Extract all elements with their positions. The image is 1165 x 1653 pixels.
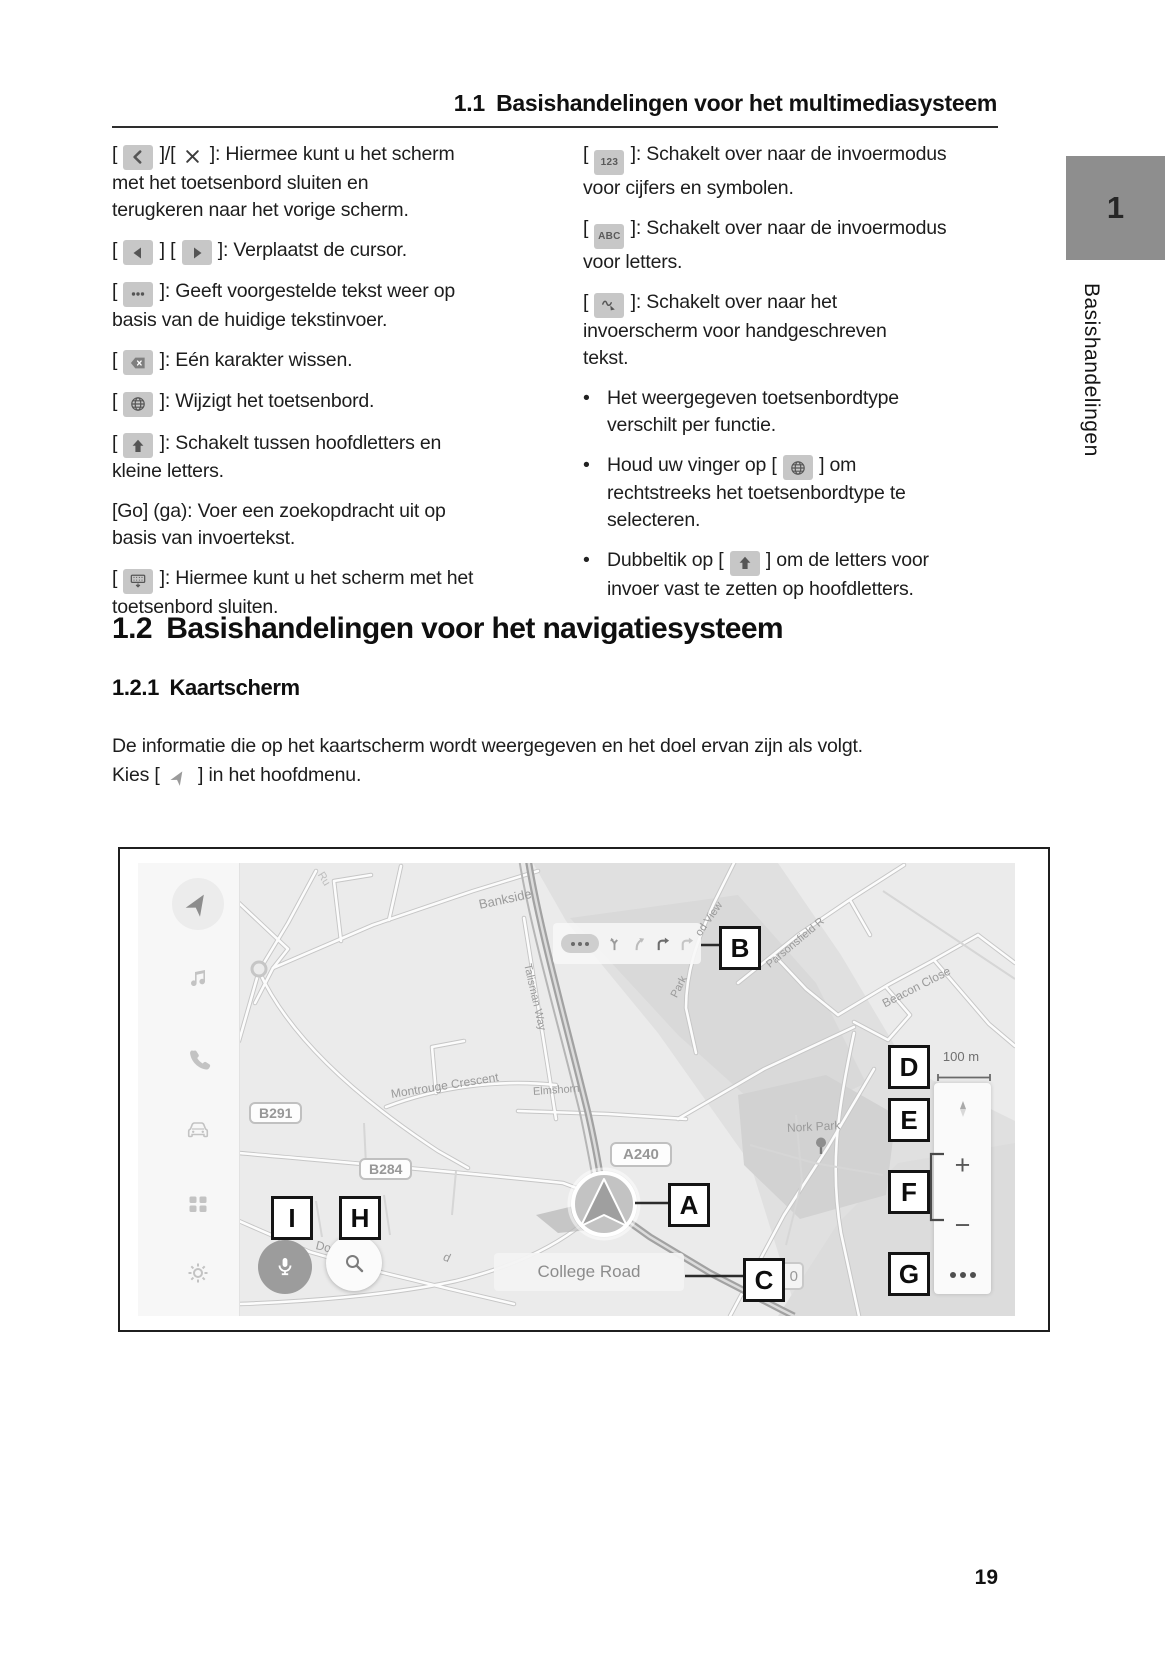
zoom-in-button[interactable]: + xyxy=(934,1152,991,1179)
backspace-icon xyxy=(123,350,153,375)
map-figure: RuBanksideod ViewParkParsonsfield RBeaco… xyxy=(118,847,1050,1332)
header-divider xyxy=(112,126,998,128)
lane-turn-right-dim-icon xyxy=(678,935,695,952)
multimedia-bullet-list: •Het weergegeven toetsenbordtypeverschil… xyxy=(583,385,1003,603)
callout-C: C xyxy=(743,1258,785,1302)
back-icon xyxy=(123,145,153,170)
cursor-right-icon xyxy=(182,240,212,265)
globe-icon xyxy=(123,392,153,417)
chapter-number: 1 xyxy=(1107,190,1124,226)
route-shield-B284: B284 xyxy=(359,1158,412,1180)
callout-H: H xyxy=(339,1196,381,1240)
multimedia-left-column: [ ]/[ ]: Hiermee kunt u het schermmet he… xyxy=(112,141,570,634)
suggest-icon xyxy=(123,282,153,307)
cursor-left-icon xyxy=(123,240,153,265)
voice-button[interactable] xyxy=(258,1240,312,1294)
mic-icon xyxy=(273,1255,297,1279)
doc-item: [ ]: Schakelt tussen hoofdletters enklei… xyxy=(112,430,570,486)
main-menu-sidebar xyxy=(138,863,240,1316)
globe-icon xyxy=(783,455,813,480)
lane-slight-right-icon xyxy=(630,935,647,952)
bullet-marker: • xyxy=(583,385,607,439)
nav-screen: RuBanksideod ViewParkParsonsfield RBeaco… xyxy=(138,863,1015,1316)
lane-turn-right-icon xyxy=(654,935,671,952)
page-number: 19 xyxy=(950,1566,998,1590)
main-menu-car-icon[interactable] xyxy=(172,1105,224,1157)
doc-item: [Go] (ga): Voer een zoekopdracht uit opb… xyxy=(112,498,570,552)
more-options-button[interactable] xyxy=(934,1272,991,1278)
callout-G: G xyxy=(888,1252,930,1296)
main-menu-phone-icon[interactable] xyxy=(172,1033,224,1085)
callout-D: D xyxy=(888,1045,930,1089)
manual-page: 1.1 Basishandelingen voor het multimedia… xyxy=(0,0,1165,1653)
callout-A: A xyxy=(668,1183,710,1227)
callout-B: B xyxy=(719,926,761,970)
search-button[interactable] xyxy=(326,1235,382,1291)
map-controls-panel: + − xyxy=(934,1083,991,1294)
main-menu-music-icon[interactable] xyxy=(172,953,224,1005)
route-shield-A240: A240 xyxy=(610,1142,672,1167)
multimedia-right-column: [ 123 ]: Schakelt over naar de invoermod… xyxy=(583,141,1003,616)
intro-paragraph: De informatie die op het kaartscherm wor… xyxy=(112,732,1022,790)
subsection-heading: 1.2.1 Kaartscherm xyxy=(112,675,300,701)
letters-abc-icon: ABC xyxy=(594,224,624,249)
search-icon xyxy=(342,1251,366,1275)
route-shield-B291: B291 xyxy=(249,1102,302,1124)
street-label: Nork Park xyxy=(787,1118,841,1135)
numbers-123-icon: 123 xyxy=(594,150,624,175)
multimedia-right-items: [ 123 ]: Schakelt over naar de invoermod… xyxy=(583,141,1003,372)
current-road-name: College Road xyxy=(537,1262,640,1282)
chapter-tab: 1 xyxy=(1066,156,1165,260)
callout-F: F xyxy=(888,1170,930,1214)
chapter-tab-label: Basishandelingen xyxy=(1079,283,1103,457)
bullet-marker: • xyxy=(583,547,607,603)
doc-item: [ ]: Schakelt over naar hetinvoerscherm … xyxy=(583,289,1003,372)
lane-arrows xyxy=(606,935,695,952)
doc-item: [ ]: Eén karakter wissen. xyxy=(112,347,570,376)
bullet-marker: • xyxy=(583,452,607,535)
doc-item: [ ABC ]: Schakelt over naar de invoermod… xyxy=(583,215,1003,276)
callout-E: E xyxy=(888,1098,930,1142)
doc-item: [ ]: Geeft voorgestelde tekst weer opbas… xyxy=(112,278,570,334)
callout-I: I xyxy=(271,1196,313,1240)
bullet-item: •Dubbeltik op [ ] om de letters voorinvo… xyxy=(583,547,1003,603)
close-icon xyxy=(182,144,204,169)
bullet-item: •Het weergegeven toetsenbordtypeverschil… xyxy=(583,385,1003,439)
keyboard-close-icon xyxy=(123,569,153,594)
nav-arrow-icon xyxy=(166,765,192,790)
map-scale-label: 100 m xyxy=(943,1049,979,1064)
lane-fork-icon xyxy=(606,935,623,952)
zoom-out-button[interactable]: − xyxy=(934,1212,991,1239)
doc-item: [ ] [ ]: Verplaatst de cursor. xyxy=(112,237,570,266)
doc-item: [ 123 ]: Schakelt over naar de invoermod… xyxy=(583,141,1003,202)
lane-guidance-bar xyxy=(553,923,701,964)
doc-item: [ ]/[ ]: Hiermee kunt u het schermmet he… xyxy=(112,141,570,224)
current-road-bar: College Road xyxy=(494,1253,684,1291)
doc-item: [ ]: Wijzigt het toetsenbord. xyxy=(112,388,570,417)
shift-icon xyxy=(730,551,760,576)
section-heading: 1.2 Basishandelingen voor het navigaties… xyxy=(112,612,783,646)
main-menu-apps-icon[interactable] xyxy=(172,1178,224,1230)
route-overview-icon xyxy=(561,934,599,953)
bullet-item: •Houd uw vinger op [ ] omrechtstreeks he… xyxy=(583,452,1003,535)
page-title: 1.1 Basishandelingen voor het multimedia… xyxy=(112,90,997,117)
shift-icon xyxy=(123,433,153,458)
compass-button[interactable] xyxy=(934,1099,991,1119)
main-menu-map-nav-arrow-icon[interactable] xyxy=(172,878,224,930)
main-menu-settings-icon[interactable] xyxy=(172,1247,224,1299)
handwriting-icon xyxy=(594,293,624,318)
map-scale: 100 m xyxy=(928,1049,994,1064)
